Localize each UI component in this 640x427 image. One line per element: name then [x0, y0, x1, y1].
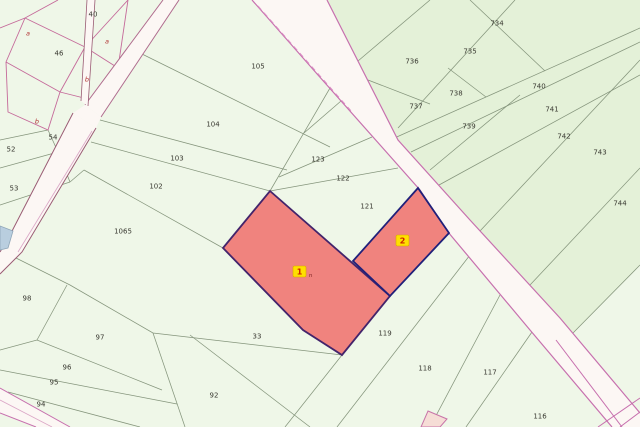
- parcel-label-736: 736: [405, 58, 419, 66]
- parcel-label-1065: 1065: [114, 228, 132, 236]
- parcel-label-104: 104: [206, 121, 220, 129]
- parcel-label-123: 123: [311, 156, 324, 164]
- parcel-label-734: 734: [490, 20, 504, 28]
- parcel-label-737: 737: [409, 103, 422, 111]
- parcel-label-740: 740: [532, 83, 545, 91]
- badge-suffix: n: [309, 273, 313, 279]
- parcel-label-744: 744: [613, 200, 627, 208]
- parcel-letter-label: b: [35, 118, 39, 126]
- parcel-label-122: 122: [336, 175, 349, 183]
- parcel-label-97: 97: [96, 334, 105, 342]
- cadastral-map-canvas[interactable]: 4046545253105104103102106598979695949233…: [0, 0, 640, 427]
- parcel-label-738: 738: [449, 90, 462, 98]
- parcel-label-95: 95: [50, 379, 59, 387]
- parcel-label-118: 118: [418, 365, 431, 373]
- parcel-badge-2[interactable]: 2: [396, 235, 409, 246]
- parcel-letter-label: b: [85, 76, 89, 84]
- parcel-label-741: 741: [545, 106, 558, 114]
- parcel-label-46: 46: [55, 50, 64, 58]
- badge-number: 1: [297, 268, 303, 277]
- parcel-label-92: 92: [210, 392, 219, 400]
- parcel-label-102: 102: [149, 183, 162, 191]
- parcel-label-119: 119: [378, 330, 391, 338]
- parcel-label-40: 40: [89, 11, 98, 19]
- parcel-label-54: 54: [49, 134, 58, 142]
- parcel-label-116: 116: [533, 413, 547, 421]
- parcel-label-53: 53: [10, 185, 19, 193]
- parcel-letter-label: a: [105, 38, 109, 46]
- parcel-label-121: 121: [360, 203, 373, 211]
- map-stage: 4046545253105104103102106598979695949233…: [0, 0, 640, 427]
- parcel-label-735: 735: [463, 48, 476, 56]
- parcel-label-52: 52: [7, 146, 16, 154]
- parcel-label-94: 94: [37, 401, 46, 409]
- parcel-letter-label: a: [26, 30, 30, 38]
- parcel-label-103: 103: [170, 155, 183, 163]
- parcel-label-117: 117: [483, 369, 496, 377]
- parcel-label-743: 743: [593, 149, 606, 157]
- parcel-label-105: 105: [251, 63, 264, 71]
- badge-number: 2: [400, 237, 406, 246]
- parcel-label-742: 742: [557, 133, 570, 141]
- parcel-label-739: 739: [462, 123, 475, 131]
- parcel-label-96: 96: [63, 364, 72, 372]
- parcel-label-33: 33: [253, 333, 262, 341]
- parcel-label-98: 98: [23, 295, 32, 303]
